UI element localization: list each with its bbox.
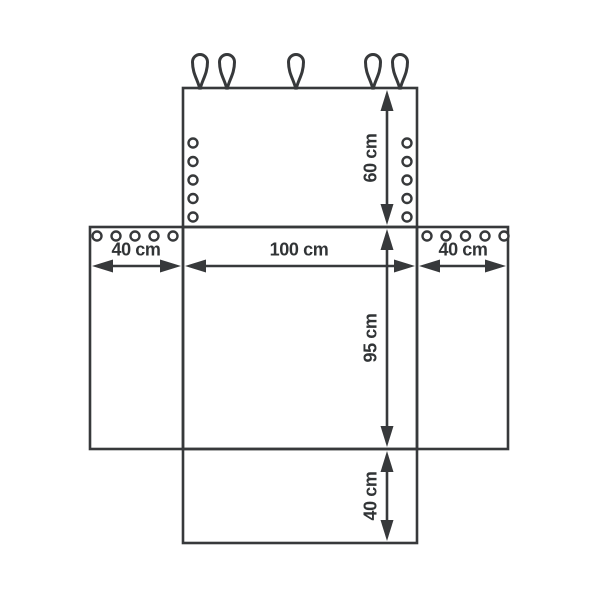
eyelet-right-flap-5 bbox=[500, 232, 509, 241]
dim-label-center-width: 100 cm bbox=[270, 240, 329, 261]
dim-arrow-center-width-head-end bbox=[394, 260, 415, 273]
dim-arrow-bottom-height-head-start bbox=[381, 451, 394, 472]
dim-label-left-flap-width: 40 cm bbox=[111, 240, 160, 261]
dim-arrow-left-flap-width-head-end bbox=[160, 260, 181, 273]
dim-arrow-left-flap-width-head-start bbox=[92, 260, 113, 273]
dim-arrow-center-height-head-end bbox=[381, 426, 394, 447]
eyelet-right-flap-1 bbox=[423, 232, 432, 241]
dim-label-bottom-height: 40 cm bbox=[361, 471, 382, 520]
eyelet-top-right-1 bbox=[403, 139, 412, 148]
eyelet-top-right-5 bbox=[403, 213, 412, 222]
diagram-canvas: 40 cm 100 cm 40 cm 60 cm 95 cm 40 cm bbox=[0, 0, 600, 600]
hanging-loop-2 bbox=[220, 55, 235, 90]
eyelet-top-left-4 bbox=[189, 194, 198, 203]
eyelet-top-right-4 bbox=[403, 194, 412, 203]
eyelet-left-flap-1 bbox=[93, 232, 102, 241]
dim-arrow-right-flap-width-head-start bbox=[419, 260, 440, 273]
eyelet-top-left-1 bbox=[189, 139, 198, 148]
eyelet-top-right-2 bbox=[403, 157, 412, 166]
hanging-loop-5 bbox=[393, 55, 408, 90]
eyelet-top-left-5 bbox=[189, 213, 198, 222]
hanging-loop-4 bbox=[366, 55, 381, 90]
eyelet-top-right-3 bbox=[403, 176, 412, 185]
dim-label-top-height: 60 cm bbox=[361, 133, 382, 182]
dim-arrow-center-width-head-start bbox=[185, 260, 206, 273]
hanging-loop-1 bbox=[193, 55, 208, 90]
dim-label-right-flap-width: 40 cm bbox=[438, 240, 487, 261]
pattern-diagram bbox=[0, 0, 600, 600]
dim-label-center-height: 95 cm bbox=[361, 313, 382, 362]
eyelet-left-flap-5 bbox=[169, 232, 178, 241]
dim-arrow-center-height-head-start bbox=[381, 229, 394, 250]
eyelet-top-left-2 bbox=[189, 157, 198, 166]
dim-arrow-top-height-head-end bbox=[381, 204, 394, 225]
dim-arrow-right-flap-width-head-end bbox=[485, 260, 506, 273]
dim-arrow-bottom-height-head-end bbox=[381, 520, 394, 541]
dim-arrow-top-height-head-start bbox=[381, 90, 394, 111]
hanging-loop-3 bbox=[289, 55, 304, 90]
eyelet-top-left-3 bbox=[189, 176, 198, 185]
bottom-panel bbox=[183, 449, 417, 543]
